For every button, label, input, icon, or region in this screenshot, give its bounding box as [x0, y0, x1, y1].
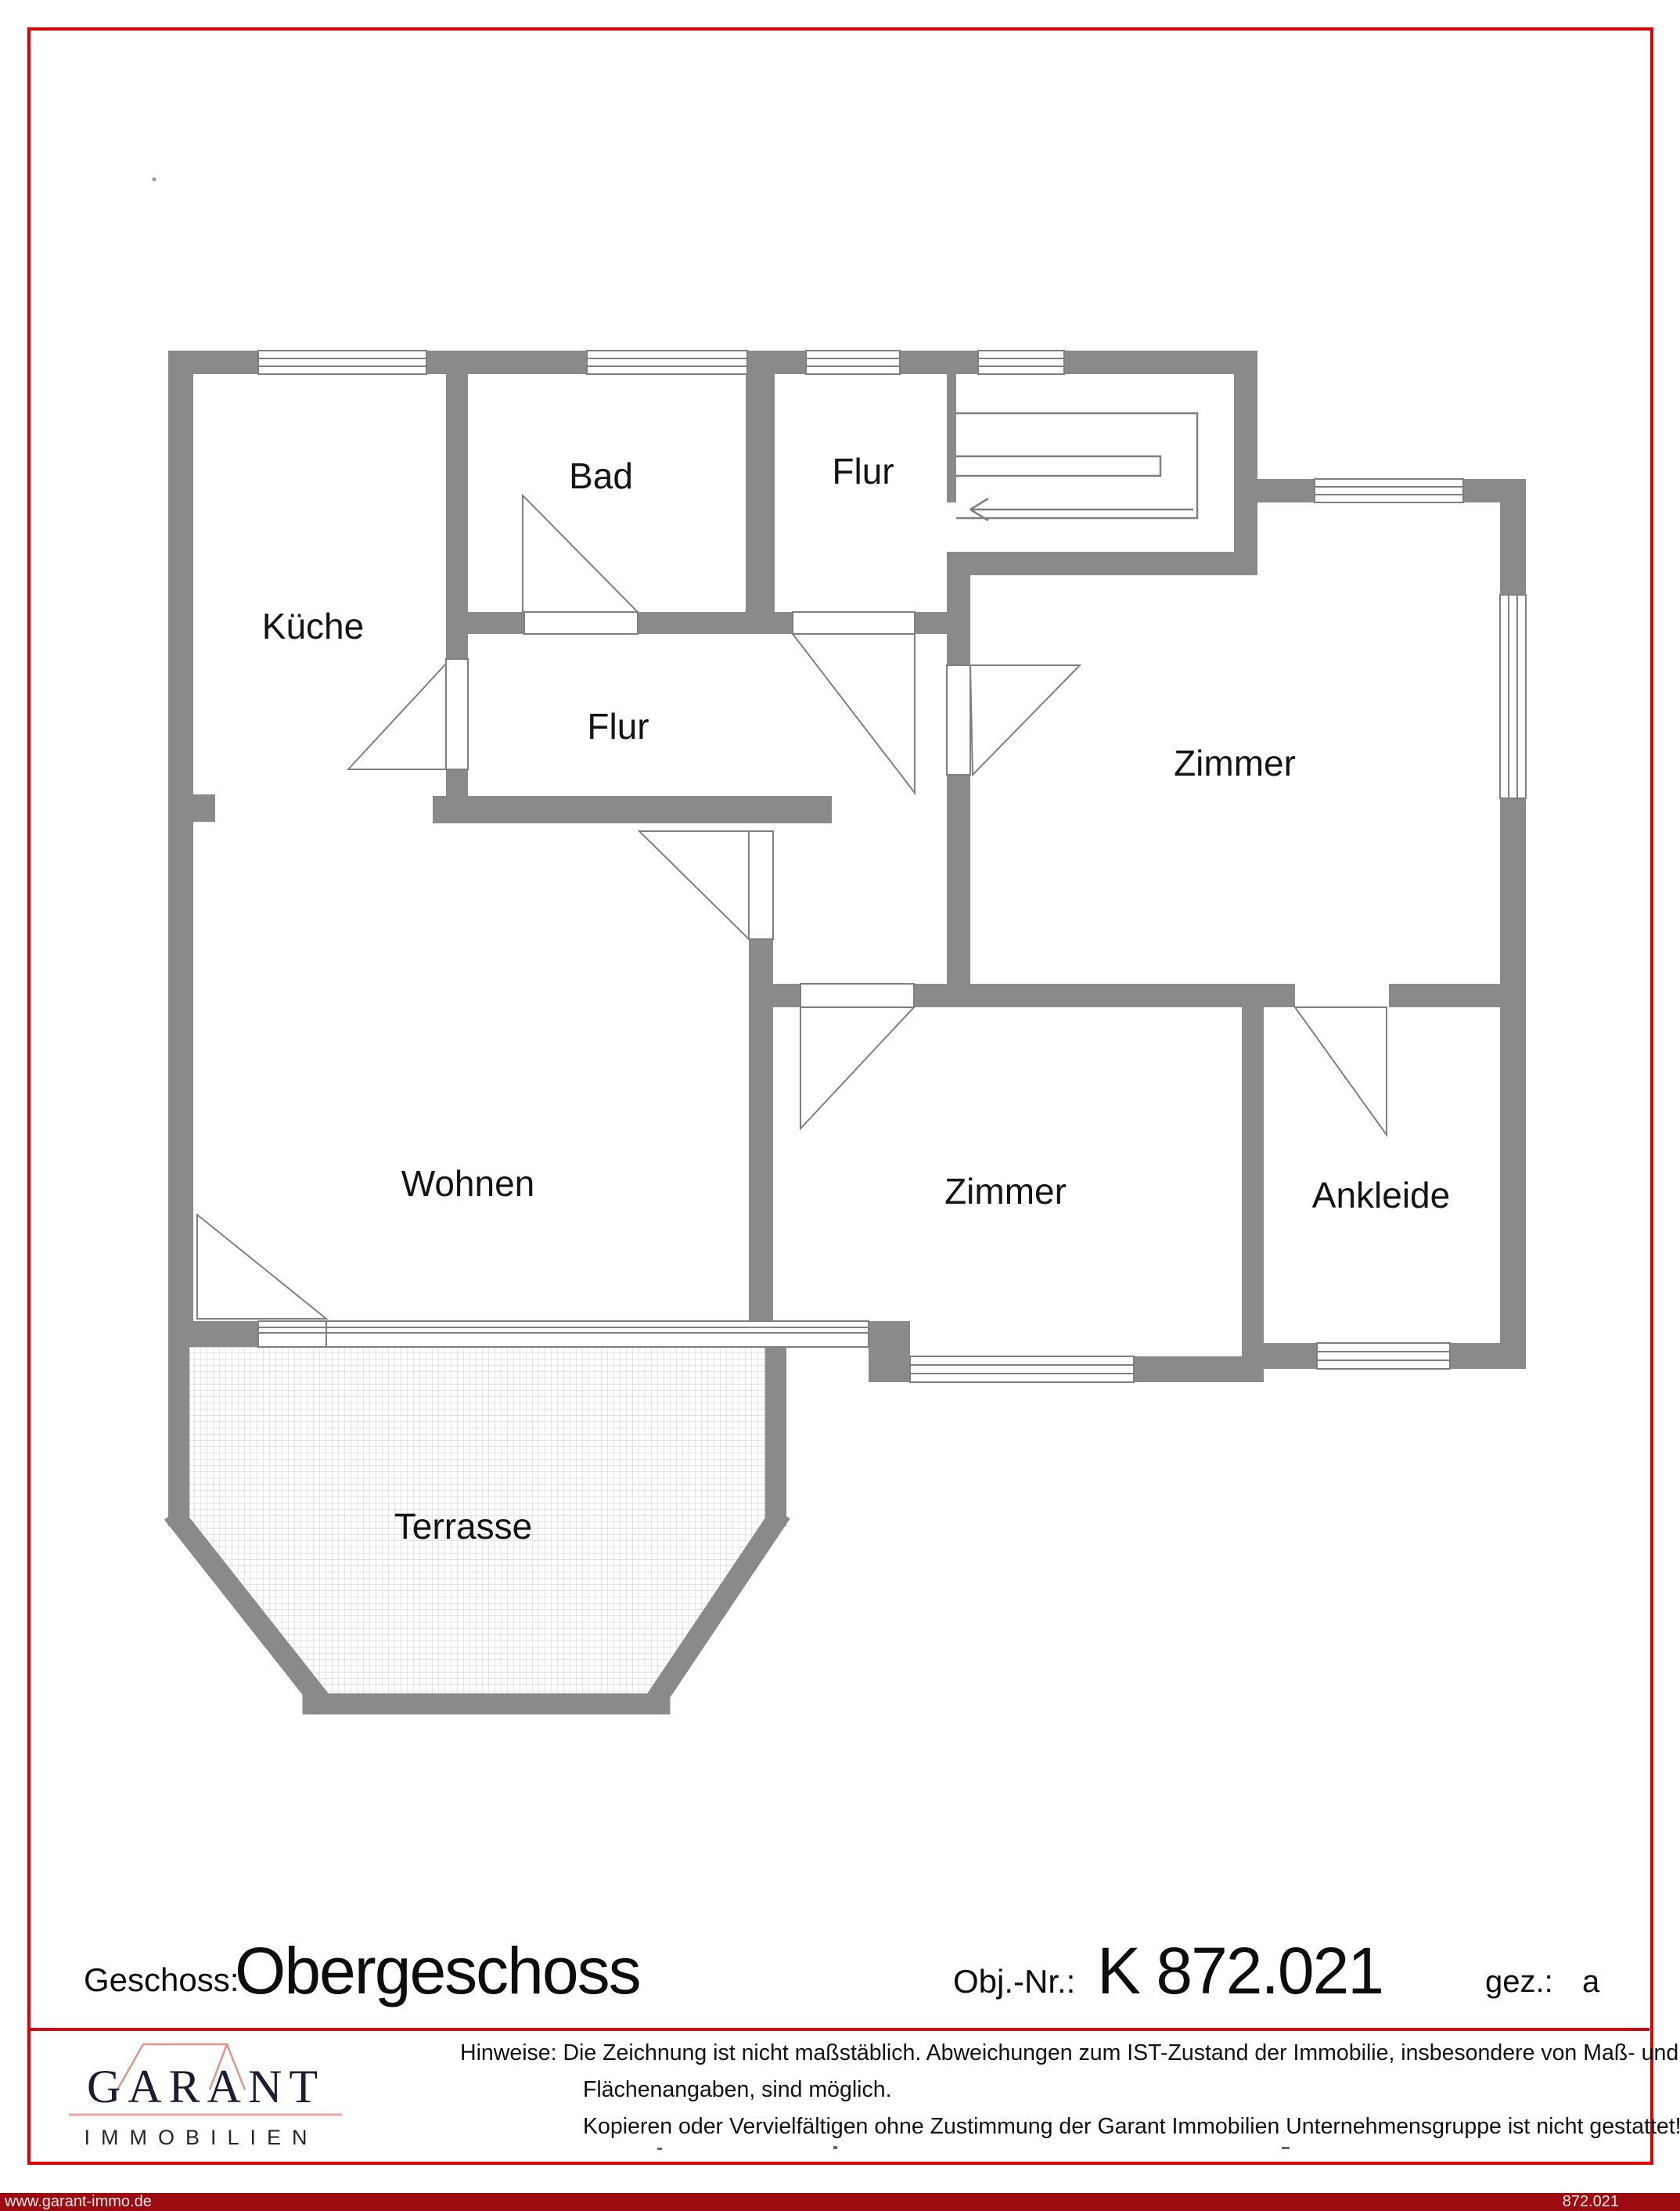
- clipped-text-mark: [833, 2146, 837, 2149]
- window-stairs: [978, 351, 1064, 374]
- stray-mark: [153, 178, 156, 182]
- room-label-kueche: Küche: [262, 606, 364, 646]
- room-label-flur-top: Flur: [832, 451, 894, 492]
- room-label-bad: Bad: [569, 456, 633, 496]
- doors: [197, 495, 1387, 1319]
- door-flur: [793, 612, 915, 793]
- window-zimmer-top: [1315, 479, 1463, 502]
- hinweise-line2: Flächenangaben, sind möglich.: [583, 2072, 1680, 2108]
- obj-nr-value: K 872.021: [1097, 1933, 1383, 2009]
- window-ankleide: [1317, 1343, 1450, 1369]
- obj-nr-label: Obj.-Nr.:: [953, 1963, 1075, 2000]
- footer-plan-number: 872.021: [1563, 2193, 1619, 2211]
- door-zimmer-right: [947, 665, 1080, 775]
- room-label-wohnen: Wohnen: [401, 1163, 535, 1204]
- room-label-flur-mid: Flur: [587, 706, 649, 747]
- hinweise-block: Hinweise: Die Zeichnung ist nicht maßstä…: [460, 2035, 1680, 2145]
- window-kueche: [258, 351, 426, 374]
- gez-label: gez.:: [1485, 1964, 1553, 2000]
- hinweise-label: Hinweise:: [460, 2040, 557, 2065]
- window-zimmer-bottom: [910, 1356, 1134, 1382]
- window-zimmer-right: [1500, 595, 1526, 798]
- room-label-ankleide: Ankleide: [1312, 1175, 1450, 1215]
- logo-subtitle: IMMOBILIEN: [84, 2126, 318, 2149]
- door-ankleide: [1295, 1007, 1387, 1135]
- clipped-text-mark: [1282, 2147, 1290, 2149]
- hinweise-line3: Kopieren oder Vervielfältigen ohne Zusti…: [583, 2108, 1680, 2145]
- room-label-zimmer-bottom: Zimmer: [944, 1171, 1067, 1212]
- door-kueche: [348, 659, 468, 769]
- floorplan-drawing: Küche Bad Flur Flur Zimmer Wohnen Zimmer…: [0, 0, 1680, 1800]
- door-terrace: [197, 1215, 326, 1319]
- clipped-text-mark: [657, 2148, 662, 2150]
- red-separator-line: [31, 2028, 1649, 2031]
- logo-name: GARANT: [87, 2061, 325, 2112]
- footer-bar: www.garant-immo.de 872.021: [0, 2193, 1680, 2211]
- window-bad: [587, 351, 747, 374]
- geschoss-value: Obergeschoss: [235, 1933, 640, 2009]
- door-bad: [523, 495, 638, 634]
- window-flur-top: [806, 351, 900, 374]
- floorplan-page: Küche Bad Flur Flur Zimmer Wohnen Zimmer…: [0, 0, 1680, 2211]
- door-zimmer-bottom: [800, 984, 914, 1129]
- door-wohnen: [639, 831, 773, 939]
- garant-logo: GARANT IMMOBILIEN: [67, 2033, 352, 2157]
- geschoss-label: Geschoss:: [84, 1961, 239, 1999]
- room-label-zimmer-right: Zimmer: [1174, 743, 1296, 783]
- window-terrace-door: [258, 1321, 869, 1347]
- walls: [168, 351, 1526, 1382]
- hinweise-line1: Die Zeichnung ist nicht maßstäblich. Abw…: [563, 2040, 1678, 2065]
- gez-value: a: [1582, 1964, 1599, 2000]
- footer-website: www.garant-immo.de: [5, 2193, 152, 2211]
- staircase: [956, 413, 1197, 520]
- room-label-terrasse: Terrasse: [394, 1506, 532, 1547]
